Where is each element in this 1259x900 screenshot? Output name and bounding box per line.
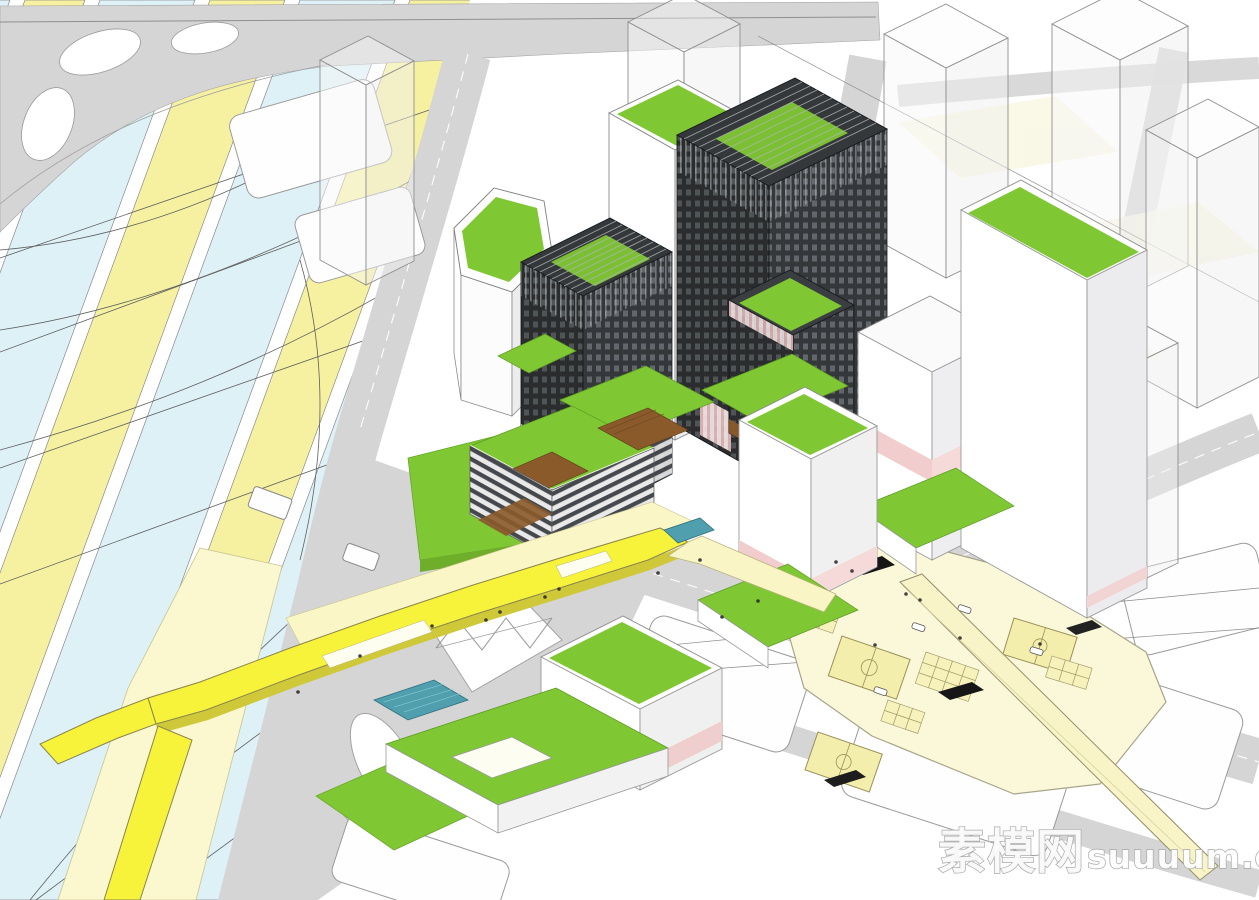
ghost-tower <box>320 36 414 285</box>
facade <box>461 275 512 416</box>
watermark-en: suuuum.com <box>1087 837 1259 876</box>
white-tower-tall-east <box>961 180 1147 618</box>
scene-canvas: 素模网suuuum.com <box>0 0 1259 900</box>
architectural-render: 素模网suuuum.com <box>0 0 1259 900</box>
watermark-cn: 素模网 <box>938 824 1085 880</box>
